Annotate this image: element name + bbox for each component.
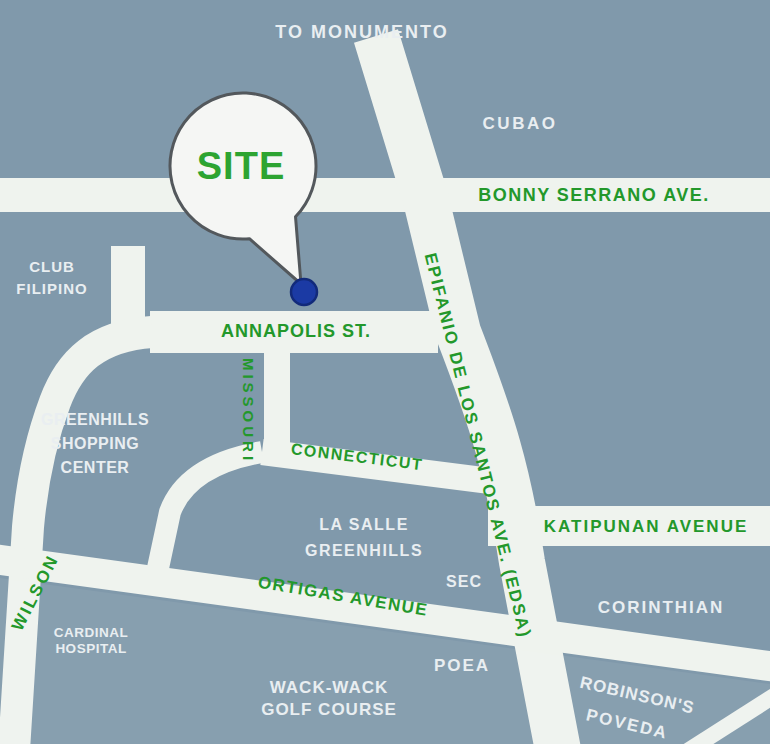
label-la-salle-line2: GREENHILLS: [305, 538, 423, 564]
label-greenhills-line3: CENTER: [41, 456, 149, 480]
label-wack-wack-line1: WACK-WACK: [261, 677, 397, 699]
site-balloon-label: SITE: [197, 146, 285, 188]
label-greenhills-line2: SHOPPING: [41, 432, 149, 456]
label-greenhills-shopping-center: GREENHILLS SHOPPING CENTER: [41, 408, 149, 480]
label-sec: SEC: [446, 573, 482, 591]
label-missouri: MISSOURI: [240, 358, 257, 464]
label-la-salle-greenhills: LA SALLE GREENHILLS: [305, 512, 423, 564]
road-connector: [158, 452, 262, 568]
site-marker-dot: [291, 279, 317, 305]
label-to-monumento: TO MONUMENTO: [275, 23, 448, 43]
label-club-filipino-line2: FILIPINO: [16, 278, 87, 300]
label-la-salle-line1: LA SALLE: [305, 512, 423, 538]
label-poea: POEA: [434, 657, 490, 676]
label-greenhills-line1: GREENHILLS: [41, 408, 149, 432]
site-balloon-bubble: [170, 93, 316, 284]
label-wack-wack-golf-course: WACK-WACK GOLF COURSE: [261, 677, 397, 721]
label-wack-wack-line2: GOLF COURSE: [261, 699, 397, 721]
label-annapolis-st: ANNAPOLIS ST.: [221, 322, 371, 342]
label-katipunan-avenue: KATIPUNAN AVENUE: [544, 518, 749, 537]
label-cardinal-line2: HOSPITAL: [54, 641, 129, 657]
label-bonny-serrano-ave: BONNY SERRANO AVE.: [478, 186, 710, 206]
label-club-filipino: CLUB FILIPINO: [16, 256, 87, 300]
label-corinthian: CORINTHIAN: [598, 599, 725, 618]
label-cardinal-hospital: CARDINAL HOSPITAL: [54, 625, 129, 657]
location-map: TO MONUMENTO CUBAO BONNY SERRANO AVE. SI…: [0, 0, 770, 744]
label-cardinal-line1: CARDINAL: [54, 625, 129, 641]
label-club-filipino-line1: CLUB: [16, 256, 87, 278]
label-cubao: CUBAO: [483, 115, 558, 134]
